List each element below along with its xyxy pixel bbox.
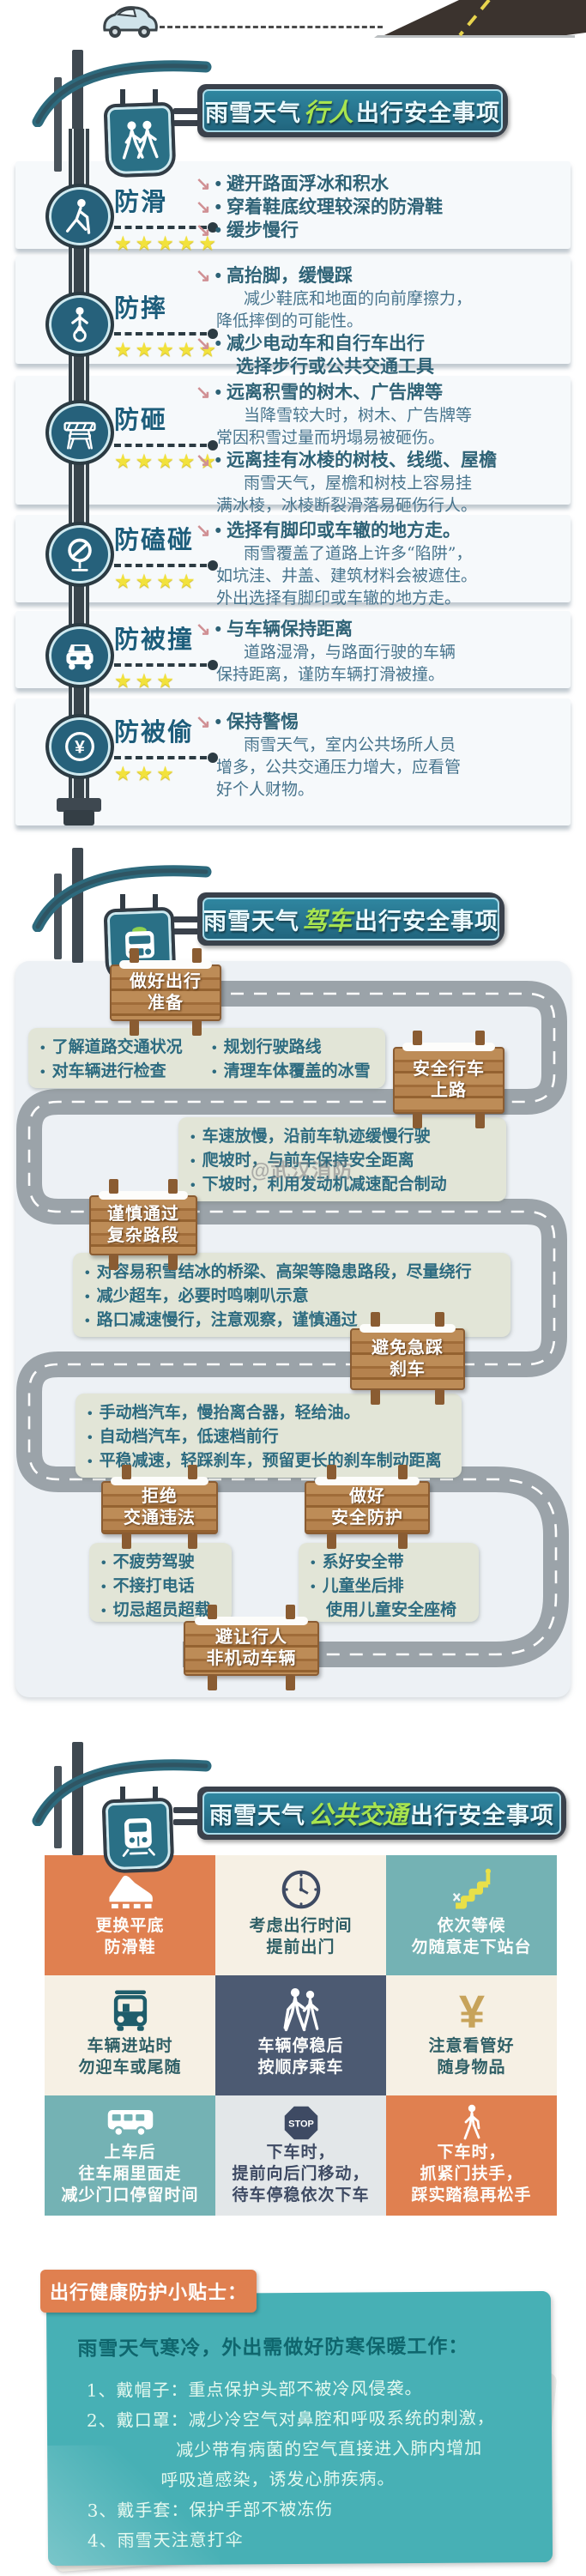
sign-line: 拒绝	[103, 1486, 216, 1508]
bullet-icon: •	[85, 1261, 90, 1285]
car-icon	[96, 3, 161, 40]
sign-line: 做好	[306, 1486, 428, 1508]
tip-text: 避开路面浮冰和积水	[227, 172, 389, 196]
sign-post	[413, 1113, 422, 1128]
tip-note: 增多，公共交通压力增大，应看管	[196, 756, 560, 778]
note-text: 不接打电话	[113, 1575, 195, 1598]
dashed-connector	[114, 756, 207, 759]
bullet-icon: •	[215, 172, 221, 196]
sign-post	[130, 948, 139, 963]
title-prefix: 雨雪天气	[203, 903, 299, 936]
sign-post	[168, 1255, 178, 1270]
sign-hanger	[120, 894, 125, 910]
note-text: 平稳减速，轻踩刹车，预留更长的刹车制动距离	[100, 1449, 442, 1472]
tile-text: 提前向后门移动，	[232, 2163, 369, 2185]
bullet-icon: •	[215, 332, 221, 355]
wood-sign-safety-protection: 做好 安全防护	[305, 1481, 430, 1534]
sign-line: 避免急踩	[352, 1338, 463, 1359]
sign-post	[192, 1020, 202, 1036]
sign-link	[173, 1819, 199, 1825]
tips-item: 1、戴帽子：重点保护头部不被冷风侵袭。	[87, 2374, 423, 2402]
train-shield-icon	[102, 1798, 175, 1874]
tile-text: 随身物品	[437, 2057, 505, 2078]
sign-post	[192, 948, 202, 963]
tile-guard-belongings: ¥ 注意看管好 随身物品	[386, 1975, 557, 2095]
title-suffix: 出行安全事项	[356, 94, 500, 128]
arrow-icon: ↘	[196, 172, 211, 196]
cyclist-icon	[45, 292, 114, 357]
tip-text: 与车辆保持距离	[227, 618, 353, 641]
tips-panel: 雨雪天气寒冷，外出需做好防寒保暖工作： 1、戴帽子：重点保护头部不被冷风侵袭。 …	[46, 2291, 553, 2566]
bullet-icon: •	[88, 1426, 93, 1449]
bullet-icon: •	[190, 1150, 196, 1173]
card-content: ↘•远离积雪的树木、广告牌等 当降雪较大时，树木、广告牌等 常因积雪过量而坍塌易…	[196, 381, 560, 517]
tile-antislip-shoes: 更换平底 防滑鞋	[45, 1855, 215, 1975]
sign-line: 准备	[112, 993, 220, 1014]
bullet-icon: •	[215, 519, 221, 542]
wood-sign-avoid-hard-braking: 避免急踩 刹车	[350, 1328, 465, 1390]
card-content: ↘•避开路面浮冰和积水 ↘•穿着鞋底纹理较深的防滑鞋 ↘•缓步慢行	[196, 172, 560, 242]
no-entry-sign-icon	[45, 522, 114, 587]
note-text: 系好安全带	[323, 1551, 404, 1574]
tip-note: 雨雪覆盖了道路上许多“陷阱”，	[196, 542, 560, 565]
dashed-route-line	[160, 26, 383, 28]
tip-note: 雨雪天气，室内公共场所人员	[196, 734, 560, 756]
tile-text: 下车时，	[437, 2142, 505, 2163]
wood-sign-safe-driving: 安全行车 上路	[393, 1047, 504, 1114]
bullet-icon: •	[101, 1599, 106, 1623]
tile-text: 往车厢里面走	[78, 2163, 181, 2185]
section-title-transit: 雨雪天气公共交通出行安全事项	[197, 1787, 566, 1840]
tile-text: 勿随意走下站台	[411, 1937, 531, 1958]
sign-line: 上路	[395, 1080, 503, 1102]
tip-note: 减少鞋底和地面的向前摩擦力，	[196, 287, 560, 310]
tip-text: 远离挂有冰棱的树枝、线缆、屋檐	[227, 449, 497, 472]
sign-post	[130, 1020, 139, 1036]
tile-hold-handrail: 下车时， 抓紧门扶手， 踩实踏稳再松手	[386, 2095, 557, 2216]
tip-note: 当降雪较大时，树木、广告牌等	[196, 404, 560, 426]
tip-note: 道路湿滑，与路面行驶的车辆	[196, 641, 560, 663]
svg-text:STOP: STOP	[288, 2119, 314, 2130]
title-highlight: 公共交通	[308, 1795, 408, 1831]
arrow-icon: ↘	[196, 618, 211, 641]
tile-text: 车辆停稳后	[257, 2035, 343, 2057]
tips-tab: 出行健康防护小贴士：	[40, 2270, 257, 2313]
tile-exit-rear-door: STOP 下车时， 提前向后门移动， 待车停稳依次下车	[215, 2095, 386, 2216]
tips-item: 2、戴口罩：减少冷空气对鼻腔和呼吸系统的刺激，	[87, 2404, 495, 2431]
dashed-connector	[114, 226, 207, 229]
sign-line: 安全防护	[306, 1508, 428, 1529]
bullet-icon: •	[311, 1551, 316, 1575]
wood-sign-yield-pedestrians: 避让行人 非机动车辆	[184, 1621, 319, 1676]
bullet-icon: •	[215, 264, 221, 287]
sign-post	[286, 1675, 295, 1690]
note-preparation: •了解道路交通状况 •规划行驶路线 •对车辆进行检查 •清理车体覆盖的冰雪	[28, 1028, 385, 1088]
sign-line: 刹车	[352, 1359, 463, 1381]
tile-departure-time: 考虑出行时间 提前出门	[215, 1855, 386, 1975]
tips-item-cont: 呼吸道感染，诱发心肺疾病。	[160, 2464, 395, 2491]
tip-note: 好个人财物。	[196, 778, 560, 801]
wood-sign-complex-roads: 谨慎通过 复杂路段	[89, 1195, 197, 1255]
sign-post	[109, 1179, 118, 1194]
tip-note: 保持距离，谨防车辆打滑被撞。	[196, 663, 560, 686]
note-text: 儿童坐后排	[323, 1575, 404, 1598]
tile-text: 依次等候	[437, 1915, 505, 1937]
tile-text: 车辆进站时	[87, 2035, 172, 2057]
bullet-icon: •	[215, 196, 221, 219]
tile-text: 提前出门	[266, 1937, 335, 1958]
tile-text: 勿迎车或尾随	[78, 2057, 181, 2078]
tip-text: 选择有脚印或车辙的地方走。	[227, 519, 461, 542]
pole-base-foot	[63, 810, 94, 825]
sign-post	[371, 1389, 380, 1405]
tile-bus-arriving: 车辆进站时 勿迎车或尾随	[45, 1975, 215, 2095]
sign-link	[173, 916, 199, 922]
bullet-icon: •	[212, 1037, 217, 1060]
bullet-icon: •	[212, 1061, 217, 1084]
tile-text: 下车时，	[266, 2142, 335, 2163]
sign-post	[475, 1113, 485, 1128]
tile-board-in-order: 车辆停稳后 按顺序乘车	[215, 1975, 386, 2095]
sign-post	[208, 1605, 217, 1619]
sign-line: 复杂路段	[91, 1225, 196, 1247]
bullet-icon: •	[190, 1126, 196, 1149]
bullet-icon: •	[40, 1037, 45, 1060]
tile-text: 减少门口停留时间	[61, 2185, 198, 2206]
tip-text: 选择步行或公共交通工具	[196, 355, 560, 378]
wood-sign-preparation: 做好出行 准备	[110, 964, 221, 1021]
sign-line: 安全行车	[395, 1059, 503, 1080]
bus-side-icon	[105, 2104, 156, 2142]
sign-post	[122, 1533, 131, 1549]
sign-post	[109, 1255, 118, 1270]
slipping-person-icon	[45, 184, 114, 249]
tip-note: 如坑洼、井盖、建筑材料会被遮住。	[196, 565, 560, 587]
sign-line: 做好出行	[112, 971, 220, 993]
tile-text: 按顺序乘车	[257, 2057, 343, 2078]
tip-text: 缓步慢行	[227, 219, 299, 242]
bullet-icon: •	[101, 1575, 106, 1599]
tile-wait-in-line: 依次等候 勿随意走下站台	[386, 1855, 557, 1975]
note-text: 使用儿童安全座椅	[326, 1599, 456, 1622]
arrow-icon: ↘	[196, 519, 211, 542]
sign-post	[327, 1465, 336, 1479]
bullet-icon: •	[85, 1285, 90, 1309]
sign-link	[173, 1807, 199, 1813]
dashed-connector	[114, 444, 207, 447]
bullet-icon: •	[85, 1309, 90, 1333]
note-text: 不疲劳驾驶	[113, 1551, 195, 1574]
sign-post	[327, 1533, 336, 1549]
title-suffix: 出行安全事项	[410, 1797, 554, 1830]
bullet-icon: •	[190, 1174, 196, 1197]
sign-post	[398, 1533, 408, 1549]
note-safety-protection: •系好安全带 •儿童坐后排 使用儿童安全座椅	[299, 1543, 479, 1622]
sign-post	[286, 1605, 295, 1619]
tip-text: 高抬脚，缓慢踩	[227, 264, 353, 287]
note-text: 对容易积雪结冰的桥梁、高架等隐患路段，尽量绕行	[97, 1261, 472, 1284]
sign-line: 非机动车辆	[185, 1648, 317, 1670]
sign-post	[168, 1179, 178, 1194]
title-highlight: 行人	[304, 93, 353, 129]
sign-post	[122, 1465, 131, 1479]
yuan-circle-icon: ¥	[45, 714, 114, 779]
yuan-icon: ¥	[449, 1984, 495, 2035]
tip-note: 满冰棱，冰棱断裂滑落易砸伤行人。	[196, 494, 560, 517]
pedestrians-icon	[277, 1984, 325, 2035]
dashed-connector	[114, 564, 207, 567]
sign-post	[413, 1031, 422, 1045]
sign-link	[173, 120, 199, 126]
clock-icon	[278, 1864, 324, 1915]
bullet-icon: •	[88, 1402, 93, 1425]
sign-post	[188, 1465, 197, 1479]
section-title-driving: 雨雪天气驾车出行安全事项	[197, 892, 504, 946]
title-suffix: 出行安全事项	[354, 903, 498, 936]
title-prefix: 雨雪天气	[209, 1797, 305, 1830]
section-title-pedestrian: 雨雪天气行人出行安全事项	[197, 84, 508, 137]
tip-note: 常因积雪过量而坍塌易被砸伤。	[196, 426, 560, 449]
sign-line: 交通违法	[103, 1508, 216, 1529]
note-text: 手动档汽车，慢抬离合器，轻给油。	[100, 1401, 360, 1424]
arrow-icon: ↘	[196, 196, 211, 219]
arrow-icon: ↘	[196, 264, 211, 287]
sign-link	[173, 108, 199, 114]
bullet-icon: •	[101, 1551, 106, 1575]
watermark: @武汉消防	[251, 1154, 353, 1183]
bus-front-icon	[107, 1984, 154, 2035]
sign-post	[398, 1465, 408, 1479]
bullet-icon: •	[215, 618, 221, 641]
sign-line: 避让行人	[185, 1627, 317, 1648]
note-text: 路口减速慢行，注意观察，谨慎通过	[97, 1309, 358, 1332]
svg-text:¥: ¥	[75, 738, 85, 758]
tip-text: 减少电动车和自行车出行	[227, 332, 425, 355]
title-prefix: 雨雪天气	[205, 94, 301, 128]
barrier-icon	[45, 400, 114, 465]
tile-text: 上车后	[104, 2142, 155, 2163]
bullet-icon: •	[311, 1575, 316, 1599]
arrow-icon: ↘	[196, 711, 211, 734]
tip-note: 雨雪天气，屋檐和树枝上容易挂	[196, 472, 560, 494]
tile-text: 踩实踏稳再松手	[411, 2185, 531, 2206]
bullet-icon: •	[40, 1061, 45, 1084]
card-content: ↘•保持警惕 雨雪天气，室内公共场所人员 增多，公共交通压力增大，应看管 好个人…	[196, 711, 560, 801]
bullet-icon: •	[215, 449, 221, 472]
tip-note: 降低摔倒的可能性。	[196, 310, 560, 332]
dashed-connector	[114, 332, 207, 336]
sign-post	[371, 1312, 380, 1327]
note-text: 车速放慢，沿前车轨迹缓慢行驶	[202, 1125, 431, 1148]
sign-hanger	[120, 89, 125, 105]
tips-title: 雨雪天气寒冷，外出需做好防寒保暖工作：	[77, 2330, 468, 2361]
tile-text: 待车停稳依次下车	[232, 2185, 369, 2206]
bullet-icon: •	[215, 219, 221, 242]
bullet-icon: •	[215, 711, 221, 734]
bullet-icon: •	[215, 381, 221, 404]
sign-post	[435, 1389, 444, 1405]
card-content: ↘•选择有脚印或车辙的地方走。 雨雪覆盖了道路上许多“陷阱”， 如坑洼、井盖、建…	[196, 519, 560, 609]
pedestrian-crossing-icon	[104, 102, 177, 178]
note-text: 了解道路交通状况	[52, 1036, 183, 1059]
road-graphic	[369, 0, 586, 38]
infographic-poster: 雨雪天气行人出行安全事项	[0, 0, 586, 2576]
car-front-icon	[45, 623, 114, 688]
note-text: 规划行驶路线	[224, 1036, 322, 1059]
note-text: 清理车体覆盖的冰雪	[224, 1060, 371, 1083]
sign-post	[435, 1312, 444, 1327]
tip-text: 保持警惕	[227, 711, 299, 734]
svg-text:¥: ¥	[458, 1986, 484, 2034]
tips-item-cont: 减少带有病菌的空气直接进入肺内增加	[176, 2434, 482, 2461]
tile-text: 抓紧门扶手，	[420, 2163, 523, 2185]
arrow-icon: ↘	[196, 449, 211, 472]
tips-item: 3、戴手套：保护手部不被冻伤	[88, 2495, 334, 2522]
dashed-connector	[114, 663, 207, 667]
tile-text: 更换平底	[95, 1915, 164, 1937]
tip-text: 穿着鞋底纹理较深的防滑鞋	[227, 196, 443, 219]
tile-text: 防滑鞋	[104, 1937, 155, 1958]
tip-text: 远离积雪的树木、广告牌等	[227, 381, 443, 404]
stop-icon: STOP	[282, 2104, 320, 2142]
tip-note: 外出选择有脚印或车辙的地方走。	[196, 587, 560, 609]
note-text: 减少超车，必要时鸣喇叭示意	[97, 1285, 309, 1308]
title-highlight: 驾车	[302, 901, 352, 937]
note-text: 自动档汽车，低速档前行	[100, 1425, 279, 1448]
note-text: 对车辆进行检查	[52, 1060, 166, 1083]
card-content: ↘•与车辆保持距离 道路湿滑，与路面行驶的车辆 保持距离，谨防车辆打滑被撞。	[196, 618, 560, 686]
tile-text: 注意看管好	[428, 2035, 514, 2057]
tile-text: 考虑出行时间	[249, 1915, 352, 1937]
tile-move-inside: 上车后 往车厢里面走 减少门口停留时间	[45, 2095, 215, 2216]
arrow-icon: ↘	[196, 219, 211, 242]
bullet-icon: •	[88, 1450, 93, 1473]
escalator-icon	[447, 1864, 497, 1915]
card-content: ↘•高抬脚，缓慢踩 减少鞋底和地面的向前摩擦力， 降低摔倒的可能性。 ↘•减少电…	[196, 264, 560, 378]
arrow-icon: ↘	[196, 381, 211, 404]
sign-post	[208, 1675, 217, 1690]
sign-post	[188, 1533, 197, 1549]
walking-person-icon	[455, 2104, 489, 2142]
sign-link	[173, 928, 199, 934]
arrow-icon: ↘	[196, 332, 211, 355]
sign-post	[475, 1031, 485, 1045]
sign-line: 谨慎通过	[91, 1204, 196, 1225]
tips-item: 4、雨雪天注意打伞	[88, 2525, 244, 2551]
wood-sign-no-violations: 拒绝 交通违法	[101, 1481, 218, 1534]
